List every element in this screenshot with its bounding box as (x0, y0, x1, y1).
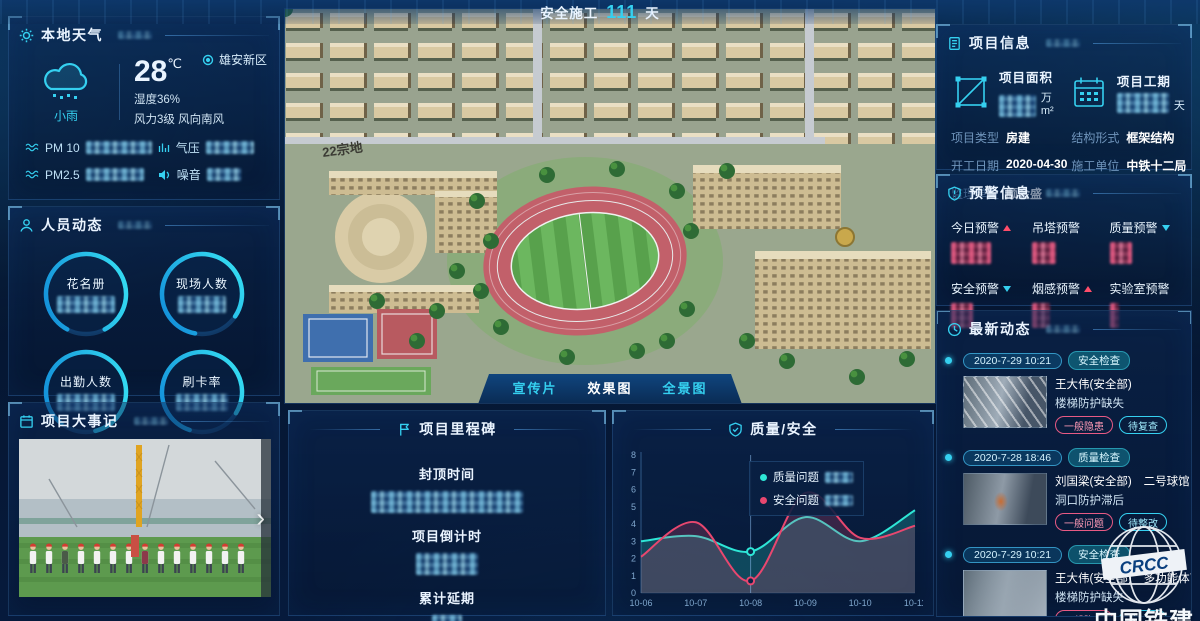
update-type: 质量检查 (1068, 448, 1130, 467)
svg-text:10-07: 10-07 (684, 598, 707, 608)
carousel-next-arrow[interactable]: › (256, 503, 265, 534)
warning-quality: 质量预警 (1110, 219, 1181, 264)
milestone-value (371, 491, 523, 513)
location-label: 雄安新区 (219, 51, 267, 68)
group-photo (19, 439, 271, 597)
personnel-panel: 人员动态 花名册 现场人数 出勤人数 刷卡率 (8, 206, 280, 396)
stat-duration: 项目工期 天 (1069, 67, 1185, 117)
clock-icon (947, 322, 962, 337)
milestone-label: 累计延期 (419, 588, 475, 607)
update-item[interactable]: 2020-7-29 10:21 安全检查 王大伟(安全部) 楼梯防护缺失 一般隐… (937, 345, 1191, 442)
tooltip-safety-row: 安全问题 (760, 492, 853, 508)
header-chip (118, 31, 152, 39)
scene-view-switcher: 宣传片 效果图 全景图 (478, 374, 741, 403)
location-pin-icon (202, 54, 214, 66)
safety-series-dot (760, 497, 767, 504)
svg-text:4: 4 (631, 519, 636, 529)
update-person: 王大伟(安全部) (1055, 376, 1132, 392)
update-person: 王大伟(安全部) (1055, 570, 1132, 586)
updates-header: 最新动态 (937, 311, 1191, 345)
field-start-date: 开工日期2020-04-30 (951, 157, 1067, 174)
issue-status-tag: 待复查 (1119, 610, 1167, 617)
humidity: 湿度36% (134, 91, 224, 107)
warnings-header: 预警信息 (937, 175, 1191, 209)
area-measure-icon (951, 72, 991, 112)
metric-pm25: PM2.5 (25, 166, 152, 183)
weather-panel: 本地天气 雄安新区 小雨 28℃ 湿度36% 风力3级 风向南风 (8, 16, 280, 200)
updates-title: 最新动态 (969, 319, 1031, 339)
milestone-value (416, 553, 478, 575)
update-type: 安全检查 (1068, 545, 1130, 564)
update-thumbnail (963, 473, 1047, 525)
weather-metrics: PM 10 气压 PM2.5 噪音 (9, 127, 279, 183)
warnings-panel: 预警信息 今日预警 吊塔预警 质量预警 安全预警 烟感预警 实验室预警 (936, 174, 1192, 306)
project-info-header: 项目信息 (937, 25, 1191, 59)
header-chip (1046, 325, 1080, 333)
site-3d-view[interactable]: 22宗地 宣传片 效果图 全景图 (284, 8, 936, 404)
issue-level-tag: 一般隐患 (1055, 610, 1113, 617)
project-info-stats: 项目面积 万m² 项目工期 天 (937, 59, 1191, 121)
events-title: 项目大事记 (41, 411, 119, 431)
milestone-list: 封顶时间 项目倒计时 累计延期 (289, 445, 605, 621)
dust-icon (25, 142, 39, 153)
milestone-panel: 项目里程碑 封顶时间 项目倒计时 累计延期 (288, 410, 606, 616)
update-place: 二号球馆 (1144, 473, 1190, 489)
metric-noise: 噪音 (158, 166, 267, 183)
quality-safety-chart[interactable]: 01234567810-0610-0710-0810-0910-1010-11 … (613, 445, 933, 616)
calendar-icon (19, 414, 34, 429)
dust-icon (25, 169, 39, 180)
stat-roster: 花名册 (39, 247, 133, 341)
chart-title: 质量/安全 (750, 419, 817, 439)
top-status-bar: 安全施工 111 天 (0, 0, 1200, 24)
milestone-label: 项目倒计时 (412, 526, 482, 545)
issue-level-tag: 一般问题 (1055, 513, 1113, 531)
btn-promo-video[interactable]: 宣传片 (512, 378, 557, 397)
noise-icon (158, 169, 171, 181)
project-info-title: 项目信息 (969, 33, 1031, 53)
document-icon (947, 36, 962, 51)
update-thumbnail (963, 376, 1047, 428)
trend-arrow (1162, 225, 1170, 231)
milestone-title: 项目里程碑 (419, 419, 497, 439)
svg-text:8: 8 (631, 450, 636, 460)
stat-onsite: 现场人数 (155, 247, 249, 341)
svg-text:0: 0 (631, 588, 636, 598)
svg-text:10-09: 10-09 (794, 598, 817, 608)
rain-cloud-icon (37, 61, 95, 105)
warning-today: 今日预警 (951, 219, 1026, 264)
update-thumbnail (963, 570, 1047, 617)
update-desc: 楼梯防护缺失 (1055, 589, 1185, 605)
svg-text:6: 6 (631, 485, 636, 495)
metric-pressure: 气压 (158, 139, 267, 156)
milestone-header: 项目里程碑 (289, 411, 605, 445)
events-photo-carousel[interactable]: › (19, 439, 271, 597)
wind: 风力3级 风向南风 (134, 111, 224, 127)
stat-area: 项目面积 万m² (951, 67, 1061, 117)
trend-arrow (1003, 286, 1011, 292)
header-chip (1046, 39, 1080, 47)
update-place: 多功能体育馆 (1144, 570, 1192, 586)
tooltip-quality-row: 质量问题 (760, 469, 853, 485)
issue-status-tag: 待整改 (1119, 513, 1167, 531)
update-desc: 洞口防护滞后 (1055, 492, 1185, 508)
tooltip-value (825, 495, 853, 506)
btn-panorama-view[interactable]: 全景图 (663, 378, 708, 397)
pressure-icon (158, 142, 170, 153)
update-type: 安全检查 (1068, 351, 1130, 370)
btn-render-view[interactable]: 效果图 (587, 378, 632, 397)
warnings-title: 预警信息 (969, 183, 1031, 203)
shield-alert-icon (947, 186, 962, 201)
field-structure: 结构形式框架结构 (1071, 129, 1186, 146)
personnel-header: 人员动态 (9, 207, 279, 241)
quality-safety-panel: 质量/安全 01234567810-0610-0710-0810-0910-10… (612, 410, 934, 616)
issue-status-tag: 待复查 (1119, 416, 1167, 434)
update-date: 2020-7-29 10:21 (963, 353, 1062, 369)
project-info-panel: 项目信息 项目面积 万m² 项目 (936, 24, 1192, 170)
shield-check-icon (728, 422, 743, 437)
field-project-type: 项目类型房建 (951, 129, 1067, 146)
update-desc: 楼梯防护缺失 (1055, 395, 1167, 411)
quality-series-dot (760, 474, 767, 481)
chart-tooltip: 质量问题 安全问题 (749, 461, 864, 516)
update-item[interactable]: 2020-7-29 10:21 安全检查 王大伟(安全部)多功能体育馆 楼梯防护… (937, 539, 1191, 617)
svg-text:7: 7 (631, 467, 636, 477)
svg-text:2: 2 (631, 554, 636, 564)
field-contractor: 施工单位中铁十二局 (1071, 157, 1186, 174)
flag-icon (397, 422, 412, 437)
weather-condition: 小雨 (54, 107, 78, 124)
issue-level-tag: 一般隐患 (1055, 416, 1113, 434)
svg-text:10-10: 10-10 (849, 598, 872, 608)
milestone-value (432, 615, 462, 621)
milestone-label: 封顶时间 (419, 464, 475, 483)
safe-days-count: 111 (606, 2, 637, 23)
safe-days-suffix: 天 (645, 2, 660, 22)
trend-arrow (1084, 286, 1092, 292)
weather-title: 本地天气 (41, 25, 103, 45)
calendar-stat-icon (1069, 72, 1109, 112)
header-chip (118, 221, 152, 229)
trend-arrow (1003, 225, 1011, 231)
warning-crane: 吊塔预警 (1032, 219, 1103, 264)
person-icon (19, 218, 34, 233)
update-person: 刘国梁(安全部) (1055, 473, 1132, 489)
location-badge: 雄安新区 (202, 51, 267, 68)
events-panel: 项目大事记 (8, 402, 280, 616)
svg-text:10-08: 10-08 (739, 598, 762, 608)
events-header: 项目大事记 (9, 403, 279, 437)
header-chip (1046, 189, 1080, 197)
metric-pm10: PM 10 (25, 139, 152, 156)
safe-days-prefix: 安全施工 (540, 2, 598, 22)
update-date: 2020-7-29 10:21 (963, 547, 1062, 563)
sun-icon (19, 28, 34, 43)
tooltip-value (825, 472, 853, 483)
svg-text:10-11: 10-11 (904, 598, 923, 608)
updates-panel: 最新动态 2020-7-29 10:21 安全检查 王大伟(安全部) 楼梯防护缺… (936, 310, 1192, 617)
chart-header: 质量/安全 (613, 411, 933, 445)
update-date: 2020-7-28 18:46 (963, 450, 1062, 466)
svg-text:3: 3 (631, 536, 636, 546)
svg-text:10-06: 10-06 (629, 598, 652, 608)
svg-text:1: 1 (631, 571, 636, 581)
personnel-title: 人员动态 (41, 215, 103, 235)
aerial-render: 22宗地 (285, 9, 936, 404)
svg-text:5: 5 (631, 502, 636, 512)
header-chip (134, 417, 168, 425)
update-item[interactable]: 2020-7-28 18:46 质量检查 刘国梁(安全部)二号球馆 洞口防护滞后… (937, 442, 1191, 539)
